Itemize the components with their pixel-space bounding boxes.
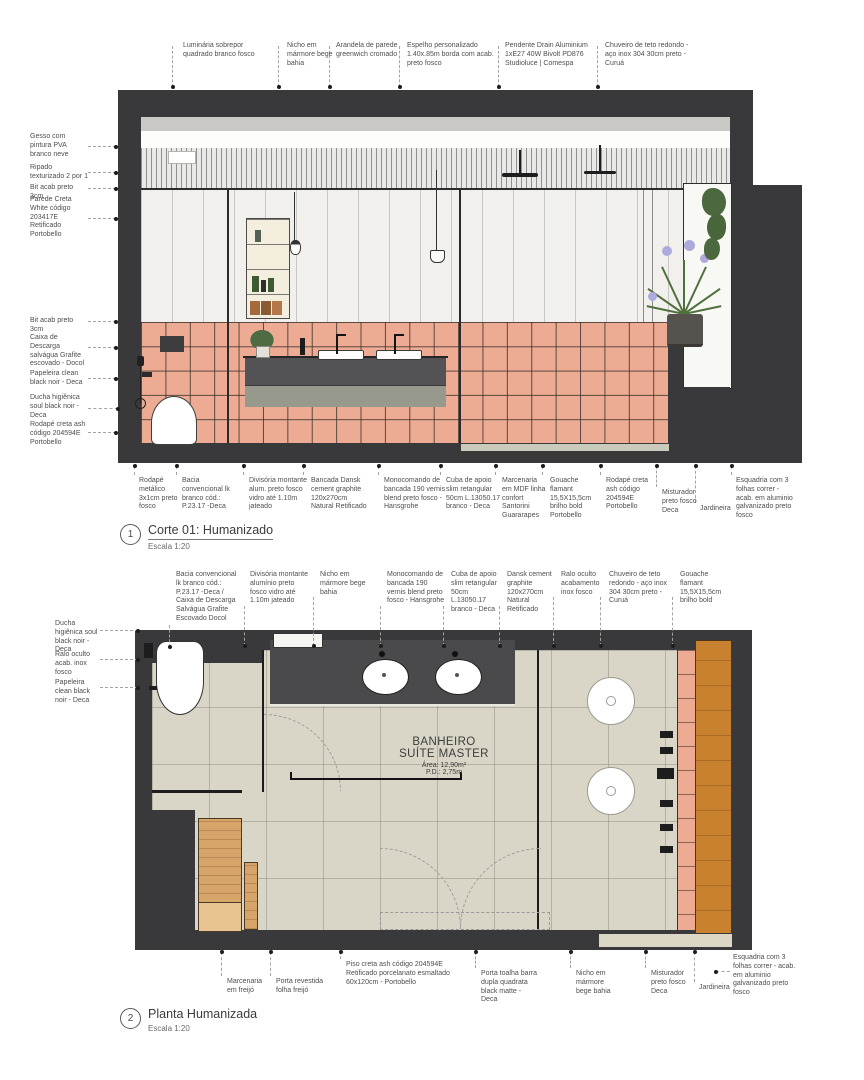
annotation-label: Bancada Dansk cement graphite 120x270cm … (311, 477, 371, 512)
towel-bar-end (290, 772, 292, 780)
vessel-sink-plan (362, 659, 409, 695)
annotation-label: Dansk cement graphite 120x270cm Natural … (507, 571, 557, 615)
drawing-title: Corte 01: Humanizado (148, 523, 273, 540)
towel-bar (290, 778, 462, 780)
annotation-label: Ducha higiênica soul black noir - Deca (30, 394, 84, 420)
paper-holder-plan (149, 686, 157, 690)
annotation-label: Chuveiro de teto redondo - aço inox 304 … (609, 571, 677, 606)
sink-drain (455, 673, 459, 677)
shower-floor-strip (460, 443, 670, 452)
mixer-control (660, 846, 673, 853)
agapanthus-flower (648, 292, 657, 301)
hand-shower-head (137, 356, 144, 366)
agapanthus-flower (684, 240, 695, 251)
niche-plan (273, 633, 323, 648)
counter-bottle (300, 338, 305, 355)
leader-line (600, 597, 601, 646)
annotation-label: Rodapé creta ash código 204594E Portobel… (606, 477, 658, 512)
annotation-label: Jardineira (700, 505, 740, 514)
annotation-label: Ralo oculto acab. inox fosco (55, 651, 99, 677)
annotation-label: Papeleira clean black noir - Deca (55, 679, 99, 705)
shower-drain-dot (606, 786, 616, 796)
annotation-label: Espelho personalizado 1.40x.85m borda co… (407, 42, 499, 68)
shelf-bottle (252, 276, 259, 292)
ceiling-recess (141, 131, 730, 148)
room-name-line2: SUÍTE MASTER (374, 748, 514, 760)
mixer-control (660, 824, 673, 831)
hand-shower-plan (144, 643, 153, 658)
leader-line (88, 408, 118, 409)
wood-door-leaf (244, 862, 258, 930)
leader-line (88, 378, 116, 379)
paper-holder (142, 372, 152, 377)
agapanthus-flower (662, 246, 672, 256)
leader-line (243, 466, 244, 475)
annotation-label: Marcenaria em MDF linha confort Santorin… (502, 477, 548, 521)
plant-leaf (683, 260, 685, 314)
leader-line (88, 321, 116, 322)
leader-line (645, 952, 646, 968)
annotation-label: Misturador preto fosco Deca (651, 970, 691, 996)
leader-line (303, 466, 304, 475)
counter-plant (248, 328, 276, 348)
annotation-label: Bacia convencional lk branco cód.: P.23.… (176, 571, 242, 624)
leader-line (443, 606, 444, 646)
vanity-drawers (245, 385, 446, 407)
ceiling-shower-pipe (519, 150, 521, 175)
annotation-label: Gouache flamant 15,5X15,5cm brilho bold (680, 571, 728, 606)
leader-line (176, 466, 177, 475)
leader-line (172, 46, 173, 87)
ceiling-band (141, 117, 730, 132)
annotation-label: Chuveiro de teto redondo - aço inox 304 … (605, 42, 697, 68)
flush-plate (160, 336, 184, 352)
leader-line (716, 971, 730, 972)
corte-right-wall (730, 116, 753, 443)
drawing-title: Planta Humanizada (148, 1007, 257, 1021)
annotation-label: Esquadria com 3 folhas correr - acab. em… (733, 954, 797, 998)
hanging-plant (707, 214, 726, 240)
window-mullion (643, 190, 644, 322)
sliding-window-sill (598, 933, 733, 948)
faucet-plan (452, 651, 458, 657)
leader-line (88, 188, 116, 189)
towel-rail-projection (380, 912, 550, 930)
annotation-label: Marcenaria em freijó (227, 978, 273, 996)
leader-line (475, 952, 476, 968)
annotation-label: Ducha higiênica soul black noir - Deca (55, 620, 99, 655)
mixer-control (660, 731, 673, 738)
room-ceiling-height: P.D.: 2,75m (374, 769, 514, 776)
leader-line (88, 218, 116, 219)
annotation-label: Bit acab preto 3cm (30, 317, 88, 335)
leader-line (88, 432, 116, 433)
annotation-label: Nicho em mármore bege bahia (576, 970, 618, 996)
glass-partition (227, 190, 229, 443)
hanging-plant (702, 188, 726, 216)
corte-right-block (753, 185, 802, 443)
annotation-label: Divisória montante alum. preto fosco vid… (249, 477, 311, 512)
drawing-scale: Escala 1:20 (148, 1024, 190, 1033)
annotation-label: Nicho em mármore bege bahia (287, 42, 335, 68)
ceiling-shower-head (502, 173, 538, 177)
annotation-label: Monocomando de bancada 190 vernis blend … (387, 571, 447, 606)
annotation-label: Gouache flamant 15,5X15,5cm brilho bold … (550, 477, 600, 521)
faucet (336, 334, 346, 354)
pendant-shade (430, 250, 445, 263)
leader-line (440, 466, 441, 475)
sconce-bulb (290, 240, 301, 255)
shelf-canister (250, 301, 260, 315)
shelf-canister (272, 301, 282, 315)
hand-shower-hook (135, 398, 146, 409)
annotation-label: Bacia convencional lk branco cód.: P.23.… (182, 477, 242, 512)
annotation-label: Caixa de Descarga salvágua Grafite escov… (30, 334, 88, 369)
mixer-control (657, 768, 674, 779)
drawing-scale: Escala 1:20 (148, 542, 190, 551)
annotation-label: Cuba de apoio slim retangular 50cm L.130… (446, 477, 502, 512)
leader-line (88, 347, 116, 348)
toilet-plan (156, 641, 204, 715)
mixer-control (660, 747, 673, 754)
leader-line (88, 172, 116, 173)
leader-line (134, 466, 135, 475)
leader-line (378, 466, 379, 475)
annotation-label: Parede Creta White código 203417E Retifi… (30, 196, 88, 240)
annotation-label: Porta toalha barra dupla quadrata black … (481, 970, 539, 1005)
plan-left-lower-wall (135, 810, 195, 950)
faucet-plan (379, 651, 385, 657)
wood-cabinet-plan (198, 818, 242, 904)
shelf-canister (261, 301, 271, 315)
planter-base-wall (683, 387, 730, 443)
annotation-label: Pendente Drain Aluminium 1xE27 40W Bivol… (505, 42, 603, 68)
annotation-label: Monocomando de bancada 190 vernis blend … (384, 477, 446, 512)
annotation-label: Cuba de apoio slim retangular 50cm L.130… (451, 571, 505, 615)
leader-line (100, 630, 138, 631)
annotation-label: Esquadria com 3 folhas correr - acab. em… (736, 477, 798, 521)
tile-strip-plan (677, 650, 697, 930)
annotation-label: Porta revestida folha freijó (276, 978, 326, 996)
leader-line (169, 625, 170, 647)
vanity-cabinet (245, 358, 446, 385)
wc-wall-segment (152, 790, 242, 793)
annotation-label: Ripado texturizado 2 por 1 (30, 164, 88, 182)
planter-pot (667, 314, 703, 347)
toilet (151, 396, 197, 445)
annotation-label: Misturador preto fosco Deca (662, 489, 704, 515)
leader-line (313, 597, 314, 646)
corte-top-wall (118, 90, 753, 117)
leader-line (88, 146, 116, 147)
planter-band-plan (695, 640, 732, 937)
leader-line (340, 952, 341, 959)
leader-line (570, 952, 571, 968)
leader-line (100, 687, 138, 688)
shower-drain-dot (606, 696, 616, 706)
mixer-control (660, 800, 673, 807)
glass-partition (459, 190, 461, 443)
room-name-line1: BANHEIRO (374, 736, 514, 748)
leader-line (270, 952, 271, 976)
leader-line (244, 606, 245, 646)
plant-pot (256, 346, 270, 358)
annotation-label: Ralo oculto acabamento inox fosco (561, 571, 605, 597)
room-area: Área: 12,90m² (374, 762, 514, 769)
leader-line (495, 466, 496, 475)
room-label: BANHEIRO SUÍTE MASTER Área: 12,90m² P.D.… (374, 736, 514, 776)
leader-line (100, 659, 138, 660)
annotation-label: Rodapé metálico 3x1cm preto fosco (139, 477, 183, 512)
leader-line (380, 606, 381, 646)
leader-line (278, 46, 279, 87)
annotation-label: Nicho em mármore bege bahia (320, 571, 366, 597)
plan-right-wall (730, 630, 752, 950)
annotation-label: Divisória montante alumínio preto fosco … (250, 571, 312, 606)
annotation-label: Papeleira clean black noir - Deca (30, 370, 88, 388)
ceiling-shower-head (584, 171, 616, 174)
pendant-cord (436, 170, 437, 250)
annotation-label: Piso creta ash código 204594E Retificado… (346, 961, 450, 987)
leader-line (694, 952, 695, 982)
sink-drain (382, 673, 386, 677)
drawing-number-badge: 1 (120, 524, 141, 545)
sconce-cord (294, 192, 295, 242)
faucet (394, 334, 404, 354)
leader-line (542, 466, 543, 475)
leader-line (221, 952, 222, 976)
shelf-bottle (261, 280, 266, 292)
vessel-sink-plan (435, 659, 482, 695)
wood-cabinet-base (198, 902, 242, 932)
ceiling-light-fixture (168, 151, 196, 164)
shelf-item (255, 230, 261, 242)
annotation-label: Luminária sobrepor quadrado branco fosco (183, 42, 271, 60)
leader-line (600, 466, 601, 475)
architectural-sheet: Luminária sobrepor quadrado branco fosco… (0, 0, 864, 1080)
annotation-label: Rodapé creta ash código 204594E Portobel… (30, 421, 88, 447)
leader-line (731, 466, 732, 475)
annotation-label: Gesso com pintura PVA branco neve (30, 133, 88, 159)
ceiling-shower-pipe (599, 145, 601, 173)
drawing-number-badge: 2 (120, 1008, 141, 1029)
window-mullion (652, 190, 653, 322)
shelf-bottle (268, 278, 274, 292)
